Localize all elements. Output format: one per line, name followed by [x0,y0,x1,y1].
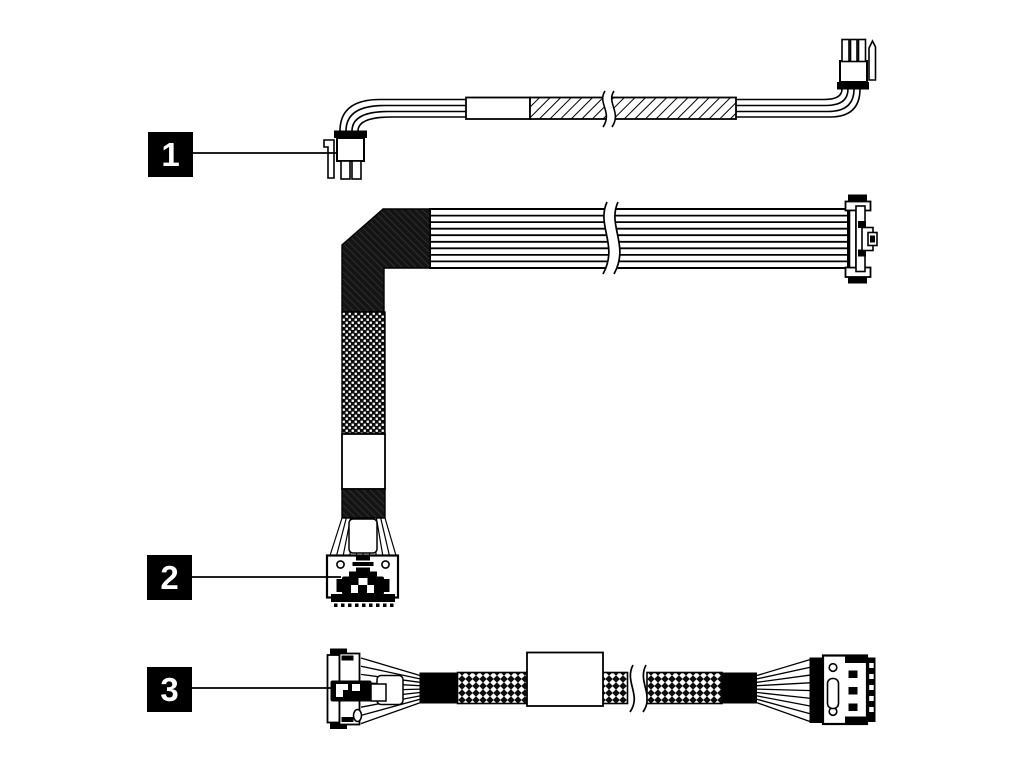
cable-band-right [722,673,757,704]
sleeve-label [466,98,530,120]
diagram-canvas: 1 2 3 [0,0,1024,768]
braided-cable [328,649,876,730]
callout-3-label: 3 [160,671,178,709]
wire-fanout-right [757,659,812,722]
hatched-sleeve [530,98,736,120]
callout-2-label: 2 [160,559,178,597]
blank-label [342,434,385,489]
callout-1: 1 [148,132,193,177]
edge-connector-icon [846,195,878,284]
callout-1-label: 1 [161,136,179,174]
cable-band-left [420,673,458,704]
power-connector-3pin-icon [837,40,876,90]
dense-hatch-sleeve [342,489,385,518]
ribbon-section [430,209,848,268]
slimline-connector-icon [810,656,876,725]
wire-bundle-right [736,89,860,117]
flat-ribbon-cable [327,195,877,608]
break-symbol-cable3 [630,665,647,712]
dense-hatch-elbow [342,209,430,312]
break-symbol-cable1 [603,91,616,127]
wire-fanout [330,518,396,556]
cable-diagram [0,0,1024,768]
mcio-connector-left-icon [328,649,387,730]
braided-sleeve-2 [647,673,722,704]
power-cable [324,40,876,180]
callout-2: 2 [147,555,192,600]
woven-sleeve [342,312,385,434]
wire-bundle-left [340,100,467,132]
connector-teeth [334,604,394,608]
power-connector-4pin-icon [324,131,367,180]
blank-label [527,653,603,707]
callout-3: 3 [147,667,192,712]
mcio-connector-icon [327,556,398,608]
